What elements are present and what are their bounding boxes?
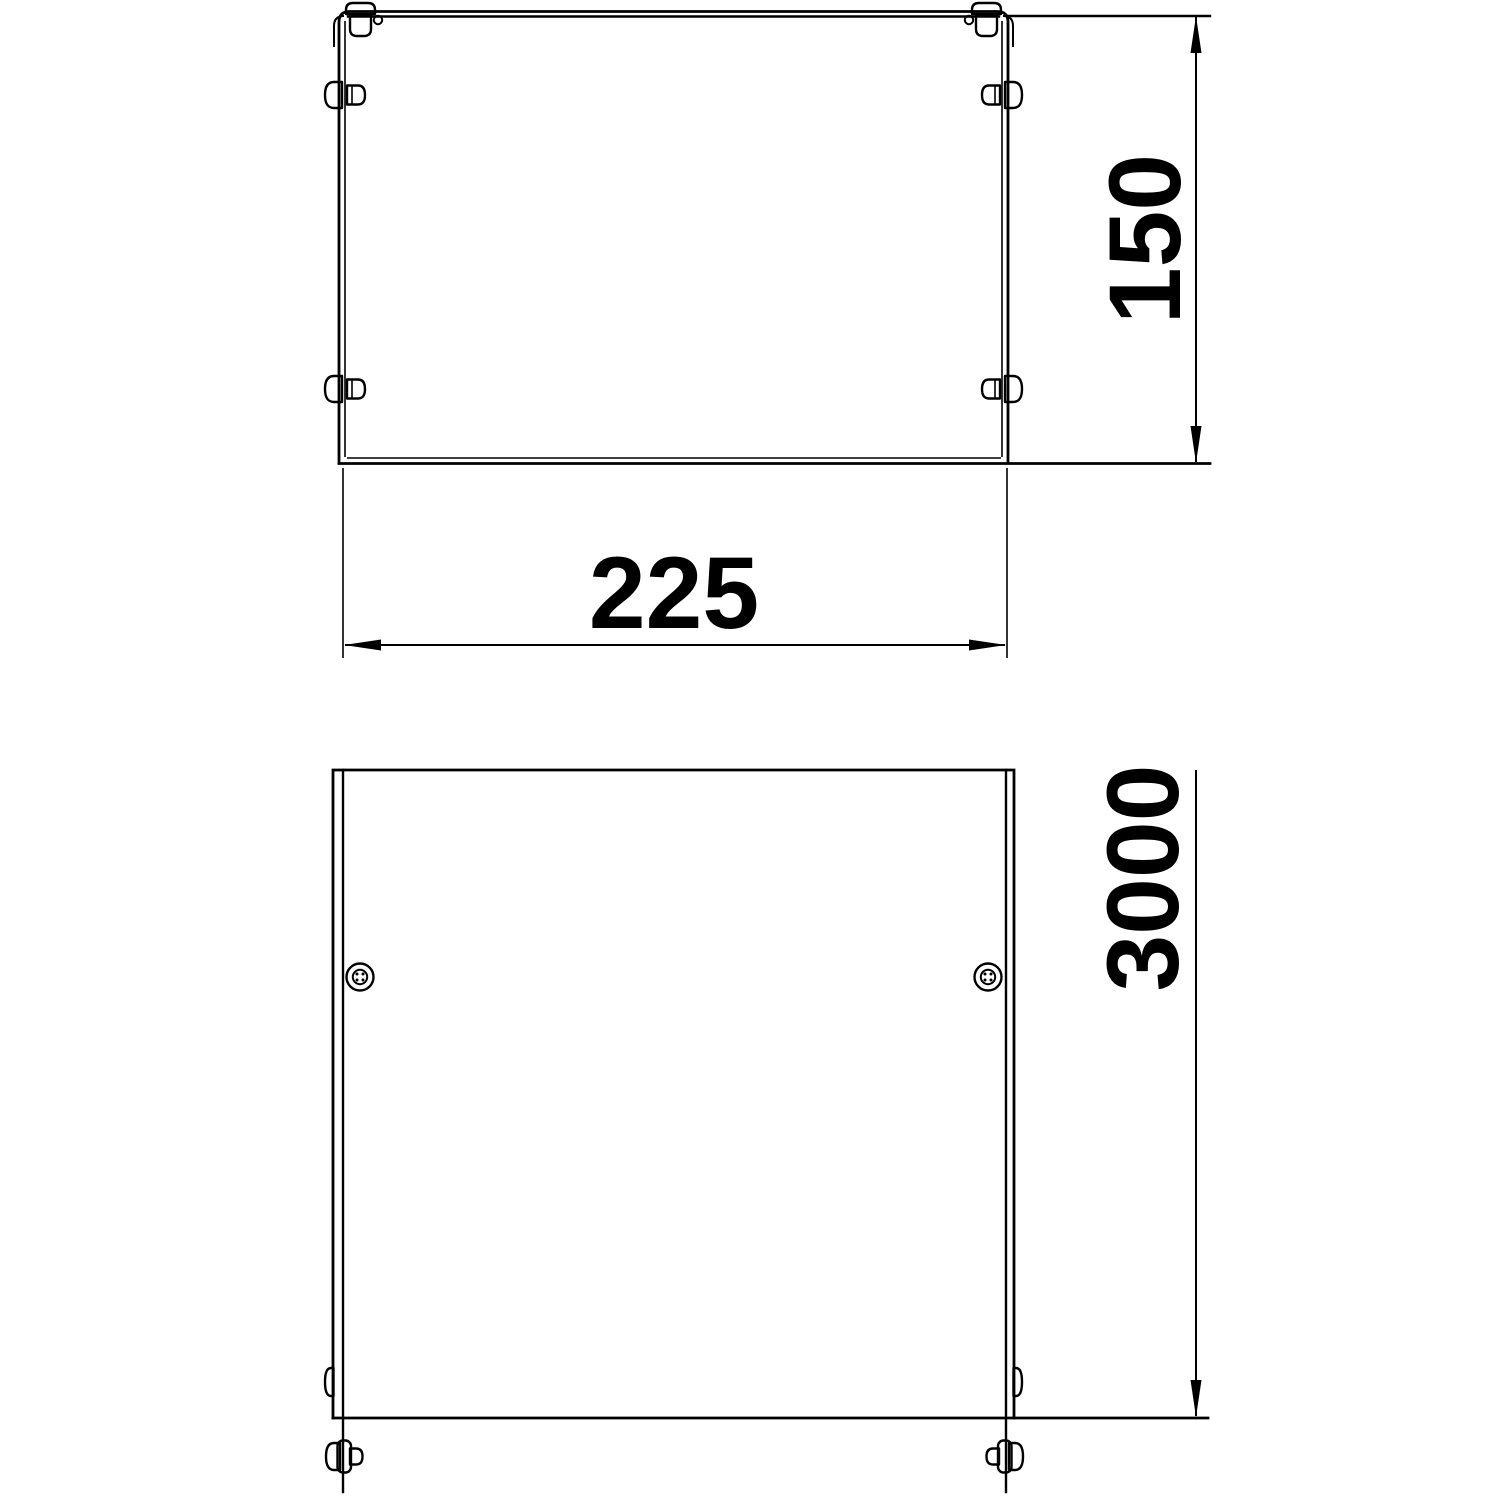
arrow-up-icon [1191, 16, 1202, 53]
dimension-length: 3000 [1086, 765, 1202, 1417]
screw-head-icon [347, 964, 374, 991]
technical-drawing: 150 225 3000 [0, 0, 1500, 1500]
coupling-clip-icon [326, 1441, 363, 1473]
dimension-width: 225 [343, 468, 1007, 658]
dimension-height-label: 150 [1088, 154, 1202, 324]
dimension-width-label: 225 [589, 536, 759, 650]
coupling-clip-icon [987, 1441, 1024, 1473]
dimension-height: 150 [1088, 16, 1202, 463]
arrow-down-icon [1191, 426, 1202, 463]
arrow-down-icon [1191, 1380, 1202, 1417]
arrow-right-icon [969, 640, 1006, 651]
cross-section-view [325, 3, 1210, 464]
corner-clip-icon [965, 3, 1013, 47]
dimension-length-label: 3000 [1086, 765, 1200, 992]
screw-head-icon [975, 964, 1002, 991]
drawing-canvas: 150 225 3000 [0, 0, 1500, 1500]
plan-view [325, 770, 1208, 1492]
cover-outline [339, 12, 1008, 464]
arrow-left-icon [344, 640, 381, 651]
tray-outline [333, 770, 1014, 1418]
corner-clip-icon [334, 3, 382, 47]
